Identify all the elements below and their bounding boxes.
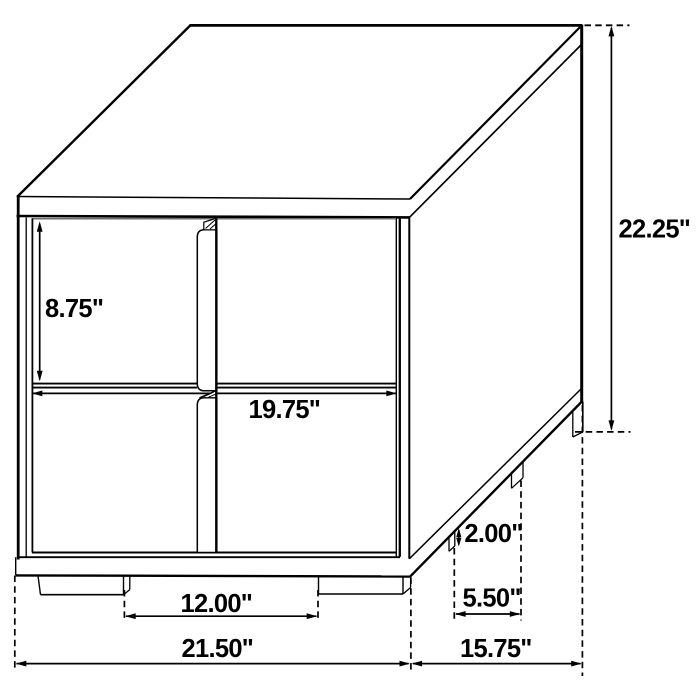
svg-text:22.25": 22.25" xyxy=(619,216,691,244)
svg-text:12.00": 12.00" xyxy=(181,590,253,618)
svg-text:19.75": 19.75" xyxy=(249,396,321,424)
svg-text:21.50": 21.50" xyxy=(182,635,254,663)
svg-text:8.75": 8.75" xyxy=(45,295,103,323)
svg-text:15.75": 15.75" xyxy=(460,635,532,663)
svg-text:5.50": 5.50" xyxy=(463,585,521,613)
svg-text:2.00": 2.00" xyxy=(464,520,522,548)
